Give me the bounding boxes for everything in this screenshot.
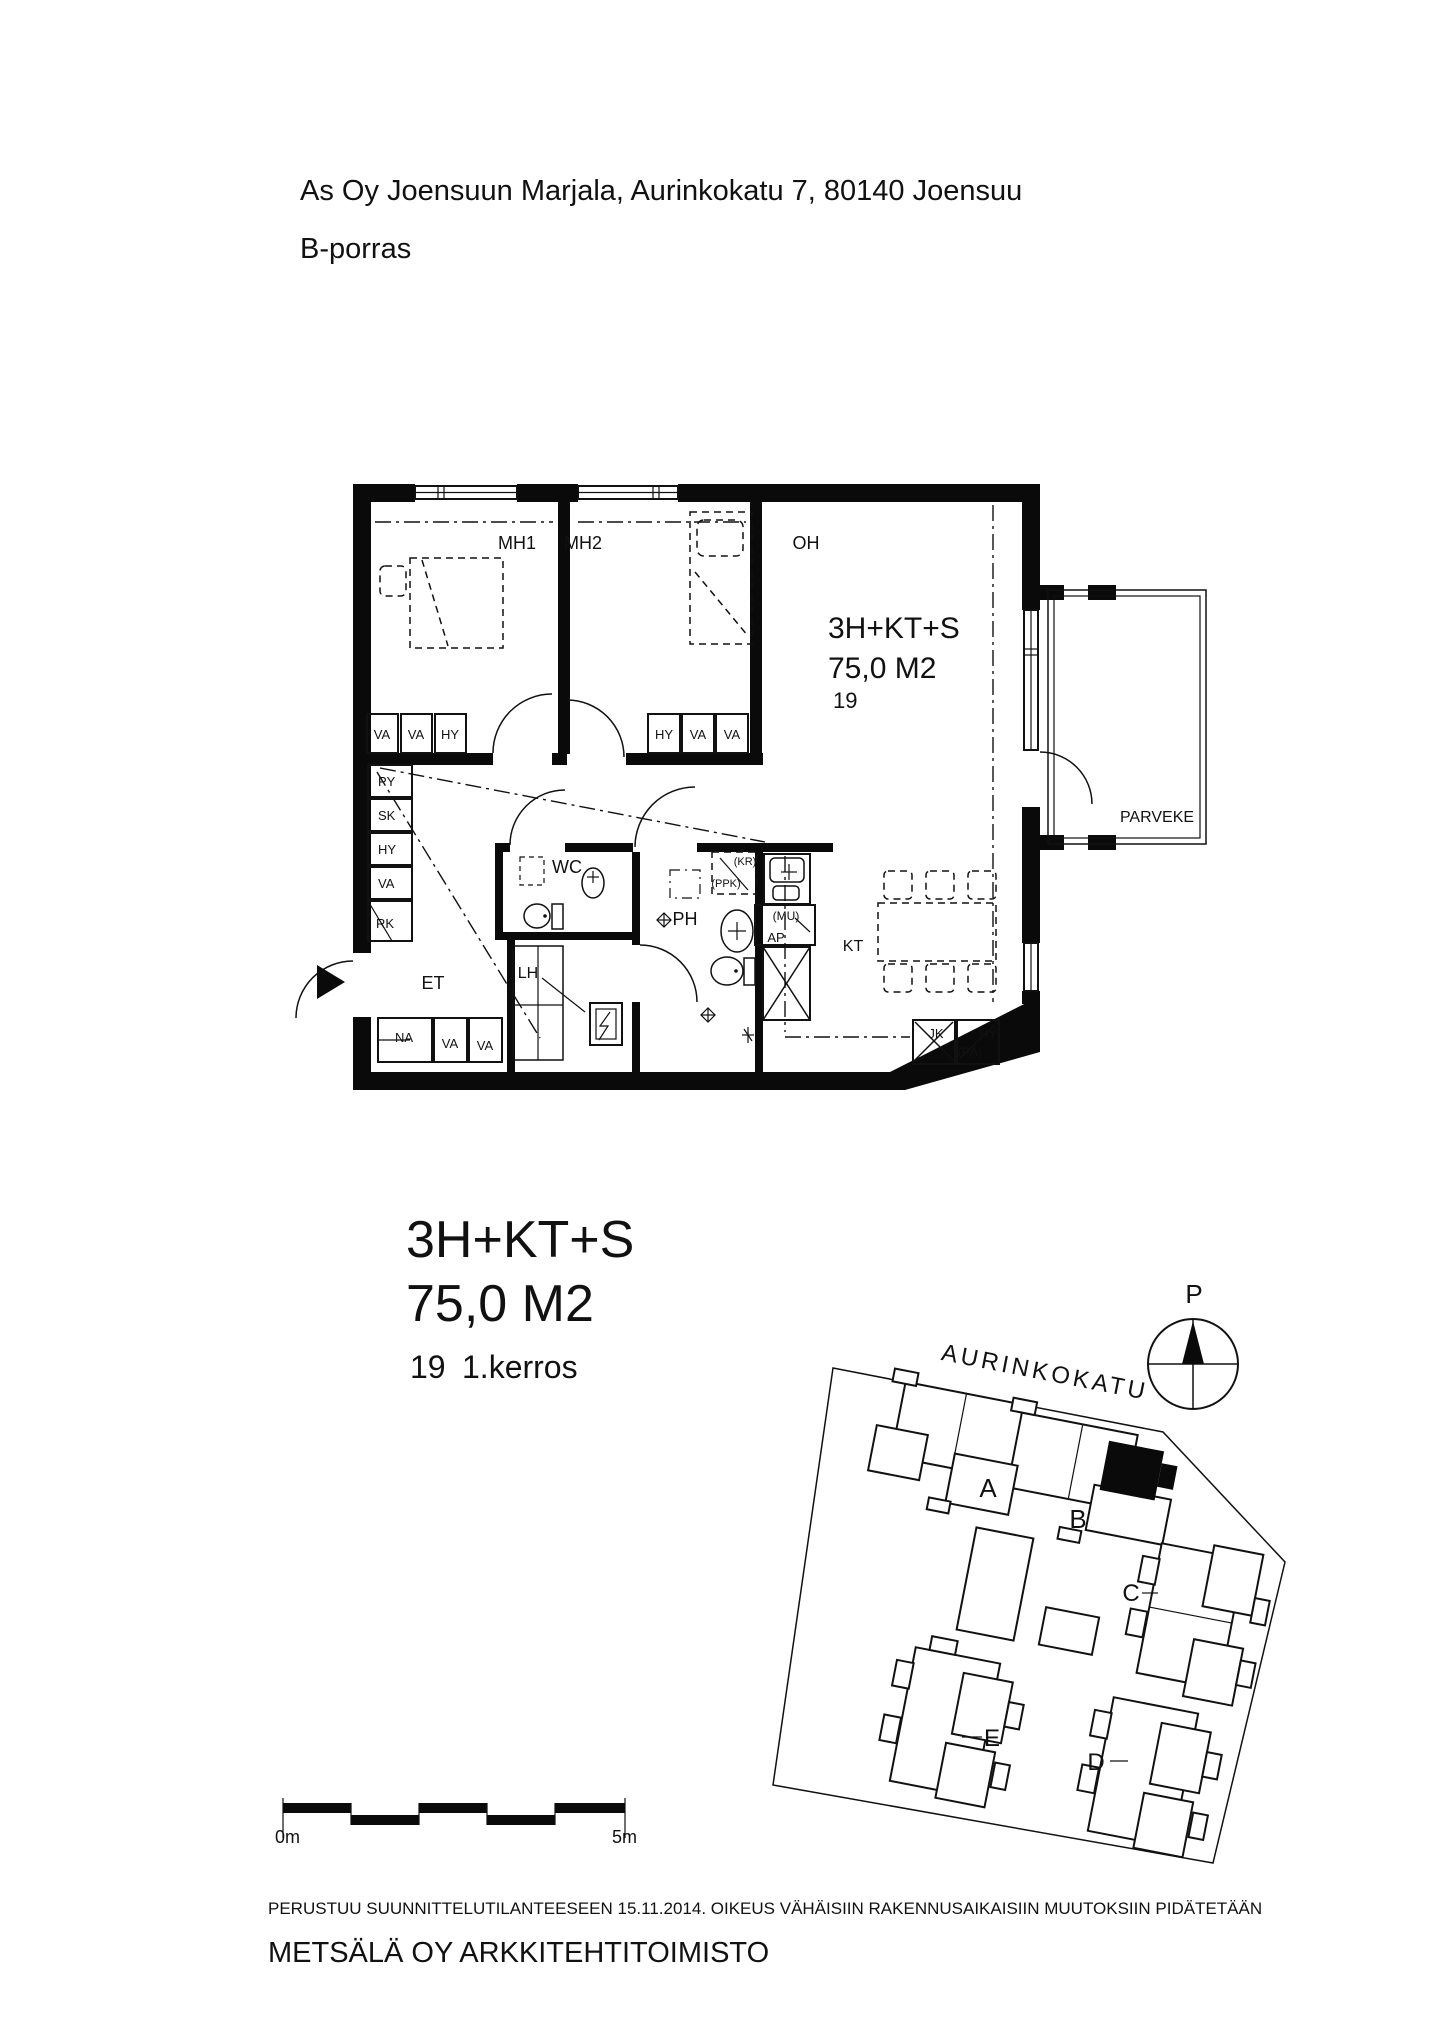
room-label-mh1: MH1 bbox=[498, 533, 536, 553]
closet-label: SK bbox=[378, 808, 396, 823]
header-staircase: B-porras bbox=[300, 233, 411, 265]
closet-row-entry-bottom: NA VA VA bbox=[378, 1018, 502, 1062]
laundry-appliances: (KR) (PPK) bbox=[711, 852, 757, 894]
north-label: P bbox=[1185, 1279, 1202, 1309]
building-label-e: E bbox=[984, 1725, 1000, 1752]
closet-label: VA bbox=[477, 1038, 494, 1053]
building-d bbox=[1069, 1694, 1229, 1861]
room-label-wc: WC bbox=[552, 857, 582, 877]
footer-disclaimer: PERUSTUU SUUNNITTELUTILANTEESEEN 15.11.2… bbox=[268, 1899, 1262, 1918]
summary-number: 19 bbox=[410, 1349, 446, 1385]
closet-label: VA bbox=[724, 727, 741, 742]
closet-row-mh1: VA VA HY bbox=[367, 714, 466, 753]
closet-label: HY bbox=[655, 727, 673, 742]
dining-set bbox=[878, 871, 996, 992]
scale-bar: 0m 5m bbox=[275, 1798, 637, 1847]
apartment-number: 19 bbox=[833, 688, 857, 713]
sauna bbox=[513, 946, 622, 1060]
closet-label: PY bbox=[378, 774, 396, 789]
summary-type: 3H+KT+S bbox=[406, 1211, 634, 1269]
appliance-label-pa: (PÄ) bbox=[958, 1045, 982, 1059]
building-e bbox=[871, 1630, 1034, 1811]
closet-column-entry: PY SK HY VA RK bbox=[368, 765, 412, 941]
closet-row-mh2: HY VA VA bbox=[648, 714, 748, 753]
building-label-a: A bbox=[979, 1473, 997, 1503]
ph-fixtures bbox=[657, 870, 755, 1043]
room-label-ph: PH bbox=[672, 909, 697, 929]
closet-label: NA bbox=[395, 1030, 413, 1045]
room-label-oh: OH bbox=[793, 533, 820, 553]
room-label-lh: LH bbox=[518, 965, 538, 982]
apartment-area: 75,0 M2 bbox=[828, 652, 936, 685]
closet-label: RK bbox=[376, 916, 394, 931]
door-arc-sauna bbox=[640, 945, 697, 1002]
building-c bbox=[1116, 1532, 1278, 1709]
appliance-label-jk: JK bbox=[928, 1026, 944, 1041]
plan-apartment-info: 3H+KT+S 75,0 M2 19 bbox=[828, 612, 960, 713]
drawing-canvas: As Oy Joensuun Marjala, Aurinkokatu 7, 8… bbox=[0, 0, 1440, 2038]
summary-block: 3H+KT+S 75,0 M2 19 1.kerros bbox=[406, 1211, 634, 1385]
bed-mh2 bbox=[690, 512, 752, 644]
footer-firm: METSÄLÄ OY ARKKITEHTITOIMISTO bbox=[268, 1937, 769, 1969]
north-needle-icon bbox=[1182, 1321, 1204, 1364]
closet-label: VA bbox=[442, 1036, 459, 1051]
appliance-label-ppk: (PPK) bbox=[711, 878, 740, 890]
floorplan-page: As Oy Joensuun Marjala, Aurinkokatu 7, 8… bbox=[0, 0, 1440, 2038]
closet-label: VA bbox=[408, 727, 425, 742]
room-label-mh2: MH2 bbox=[564, 533, 602, 553]
section-lines bbox=[375, 505, 993, 1038]
doors bbox=[296, 694, 1092, 1018]
room-label-kt: KT bbox=[843, 938, 864, 955]
header: As Oy Joensuun Marjala, Aurinkokatu 7, 8… bbox=[300, 175, 1022, 265]
closet-label: VA bbox=[374, 727, 391, 742]
site-plan: AURINKOKATU P A B bbox=[773, 1279, 1285, 1863]
apartment-type: 3H+KT+S bbox=[828, 612, 960, 645]
site-outbuilding-2 bbox=[1039, 1607, 1099, 1655]
closet-label: HY bbox=[441, 727, 459, 742]
building-label-b: B bbox=[1069, 1504, 1086, 1534]
room-label-parveke: PARVEKE bbox=[1120, 809, 1194, 826]
closet-label: VA bbox=[378, 876, 395, 891]
door-arc-mh1 bbox=[493, 694, 552, 753]
door-arc-ph bbox=[635, 787, 695, 847]
scale-start-label: 0m bbox=[275, 1827, 300, 1847]
door-arc-mh2 bbox=[567, 700, 624, 757]
north-arrow: P bbox=[1148, 1279, 1238, 1409]
summary-area: 75,0 M2 bbox=[406, 1275, 594, 1333]
closet-label: HY bbox=[378, 842, 396, 857]
appliance-label-kr: (KR) bbox=[734, 856, 757, 868]
balcony: PARVEKE bbox=[1040, 585, 1206, 850]
header-address: As Oy Joensuun Marjala, Aurinkokatu 7, 8… bbox=[300, 175, 1022, 207]
appliance-label-mu: (MU) bbox=[773, 909, 800, 923]
highlighted-stairwell-b bbox=[1100, 1441, 1165, 1501]
building-label-d: D bbox=[1087, 1749, 1104, 1776]
footer: PERUSTUU SUUNNITTELUTILANTEESEEN 15.11.2… bbox=[268, 1899, 1262, 1969]
room-label-et: ET bbox=[421, 973, 444, 993]
bed-mh1 bbox=[380, 558, 503, 648]
site-outbuilding-1 bbox=[957, 1527, 1034, 1640]
building-label-c: C bbox=[1122, 1580, 1139, 1607]
closet-label: VA bbox=[690, 727, 707, 742]
floor-plan: PARVEKE VA VA bbox=[296, 483, 1206, 1090]
summary-floor: 1.kerros bbox=[462, 1349, 578, 1385]
scale-end-label: 5m bbox=[612, 1827, 637, 1847]
appliance-label-hy: HY bbox=[979, 1026, 997, 1041]
stove-lightning-icon bbox=[599, 1012, 610, 1040]
entrance-arrow-icon bbox=[317, 965, 345, 999]
appliance-label-ap: AP bbox=[767, 930, 784, 945]
